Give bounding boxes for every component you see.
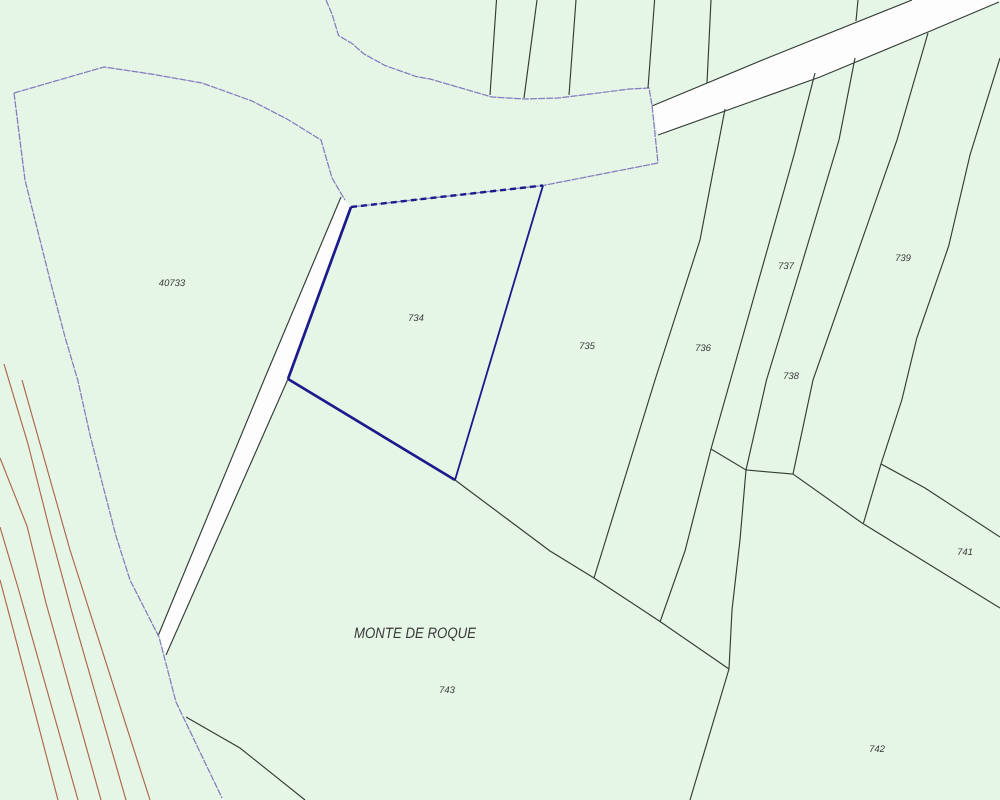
svg-text:734: 734 bbox=[408, 313, 424, 324]
svg-text:735: 735 bbox=[579, 341, 596, 352]
svg-text:743: 743 bbox=[439, 685, 456, 696]
svg-text:741: 741 bbox=[957, 547, 973, 558]
svg-text:742: 742 bbox=[869, 744, 886, 755]
svg-text:40733: 40733 bbox=[159, 278, 186, 289]
svg-text:739: 739 bbox=[895, 253, 912, 264]
svg-text:738: 738 bbox=[783, 371, 800, 382]
svg-text:736: 736 bbox=[695, 343, 712, 354]
svg-text:MONTE DE ROQUE: MONTE DE ROQUE bbox=[354, 625, 477, 642]
svg-text:737: 737 bbox=[778, 261, 795, 272]
